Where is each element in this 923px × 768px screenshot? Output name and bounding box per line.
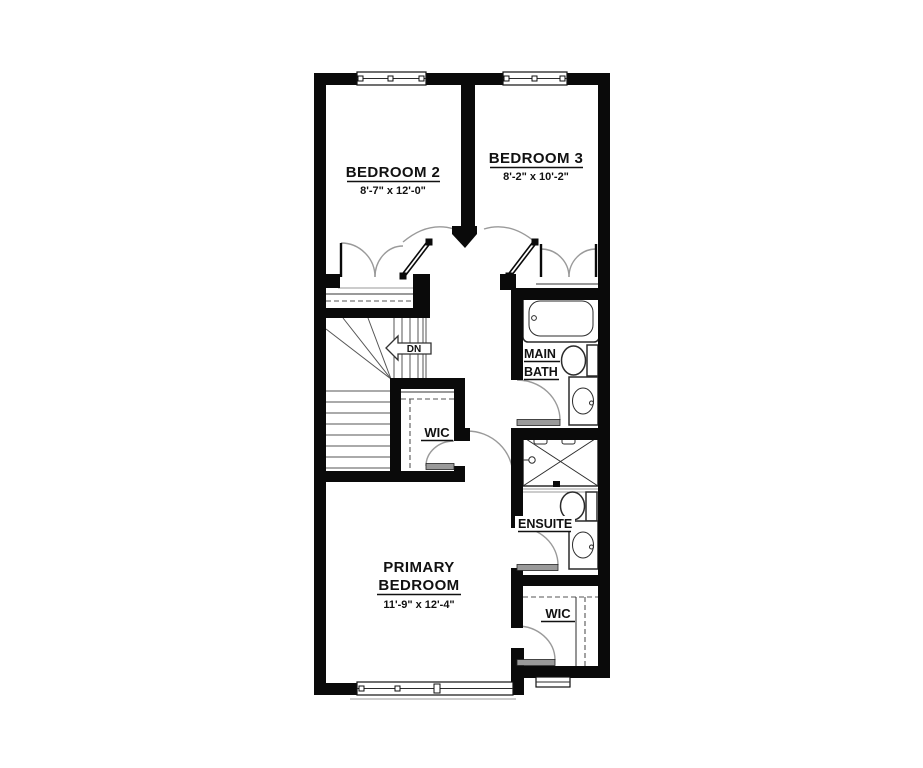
ensuite-door — [517, 565, 558, 571]
main-bath-door — [517, 420, 560, 426]
primary-label-line1: PRIMARY — [383, 559, 454, 576]
shower-curb-stop — [553, 481, 560, 487]
door-hinge — [532, 239, 539, 246]
wall-divider-stub — [452, 226, 477, 248]
main-bath-door-swing — [517, 380, 560, 420]
door-hinge — [400, 273, 407, 280]
wall-wic-bottom — [390, 471, 465, 482]
wall-stair-top — [314, 308, 430, 318]
bedroom2-closet-swing — [341, 243, 375, 277]
toilet-bowl — [562, 346, 586, 375]
stair-winder — [343, 318, 391, 379]
stair-direction-label: DN — [407, 344, 421, 355]
wall-wic-top — [390, 378, 465, 389]
primary-dims: 11'-9" x 12'-4" — [383, 599, 454, 611]
wall-ensuite-wic-divider — [511, 575, 610, 586]
window-bead — [358, 76, 363, 81]
toilet-tank — [587, 345, 598, 376]
window-bead — [419, 76, 424, 81]
wall-b2-stub — [314, 274, 340, 288]
floor-plan-page: BEDROOM 2 8'-7" x 12'-0" BEDROOM 3 8'-2"… — [0, 0, 923, 768]
door-hinge — [426, 239, 433, 246]
wall-wic-right-nub — [454, 428, 470, 441]
wic-upper-label: WIC — [424, 425, 450, 440]
primary-label-line2: BEDROOM — [378, 577, 459, 594]
ensuite-door-swing — [517, 527, 558, 565]
bedroom3-closet-swing — [569, 249, 596, 277]
bedroom2-label: BEDROOM 2 — [346, 164, 440, 181]
bedroom3-door-swing — [484, 227, 535, 242]
bedroom3-label: BEDROOM 3 — [489, 150, 583, 167]
bedroom2-door-inner — [403, 242, 429, 276]
wall-bottom-wic — [511, 666, 610, 678]
window-bead — [359, 686, 364, 691]
wall-bath-left-upper — [511, 288, 523, 380]
bedroom2-closet-swing — [375, 246, 403, 277]
primary-door-swing — [467, 431, 513, 476]
wall-wic-right-corner — [454, 466, 465, 482]
wall-bath-top — [511, 288, 610, 300]
wic-upper-door — [426, 464, 454, 470]
wall-wic-left — [390, 378, 401, 482]
wall-stair-bottom — [314, 471, 390, 482]
window-bead — [388, 76, 393, 81]
window-bead — [532, 76, 537, 81]
wall-bath-ensuite-divider — [511, 428, 610, 440]
wic-lower-label: WIC — [545, 606, 571, 621]
ensuite-fixtures — [523, 437, 598, 569]
wall-bath-left-mid — [511, 428, 523, 528]
floor-plan-drawing: BEDROOM 2 8'-7" x 12'-0" BEDROOM 3 8'-2"… — [0, 0, 923, 768]
window-mullion — [434, 684, 440, 693]
wic-lower-door — [517, 660, 555, 666]
bedroom3-dims: 8'-2" x 10'-2" — [503, 171, 569, 183]
door-hinge — [506, 273, 513, 280]
window-bead — [560, 76, 565, 81]
toilet-bowl — [561, 492, 585, 520]
bedroom2-dims: 8'-7" x 12'-0" — [360, 185, 426, 197]
window-bead — [395, 686, 400, 691]
wic-upper-door-swing — [426, 441, 454, 466]
wall-wic-right-upper — [454, 378, 465, 428]
main-bath-label-line2: BATH — [524, 365, 558, 379]
window-bead — [504, 76, 509, 81]
bedroom3-closet-swing — [541, 249, 569, 277]
toilet-tank — [586, 492, 597, 521]
bedroom3-door-inner — [509, 242, 535, 276]
ensuite-label: ENSUITE — [518, 517, 572, 531]
wall-bedroom-divider — [461, 85, 475, 229]
wall-right — [598, 73, 610, 678]
wall-left — [314, 73, 326, 695]
main-bath-label-line1: MAIN — [524, 347, 556, 361]
